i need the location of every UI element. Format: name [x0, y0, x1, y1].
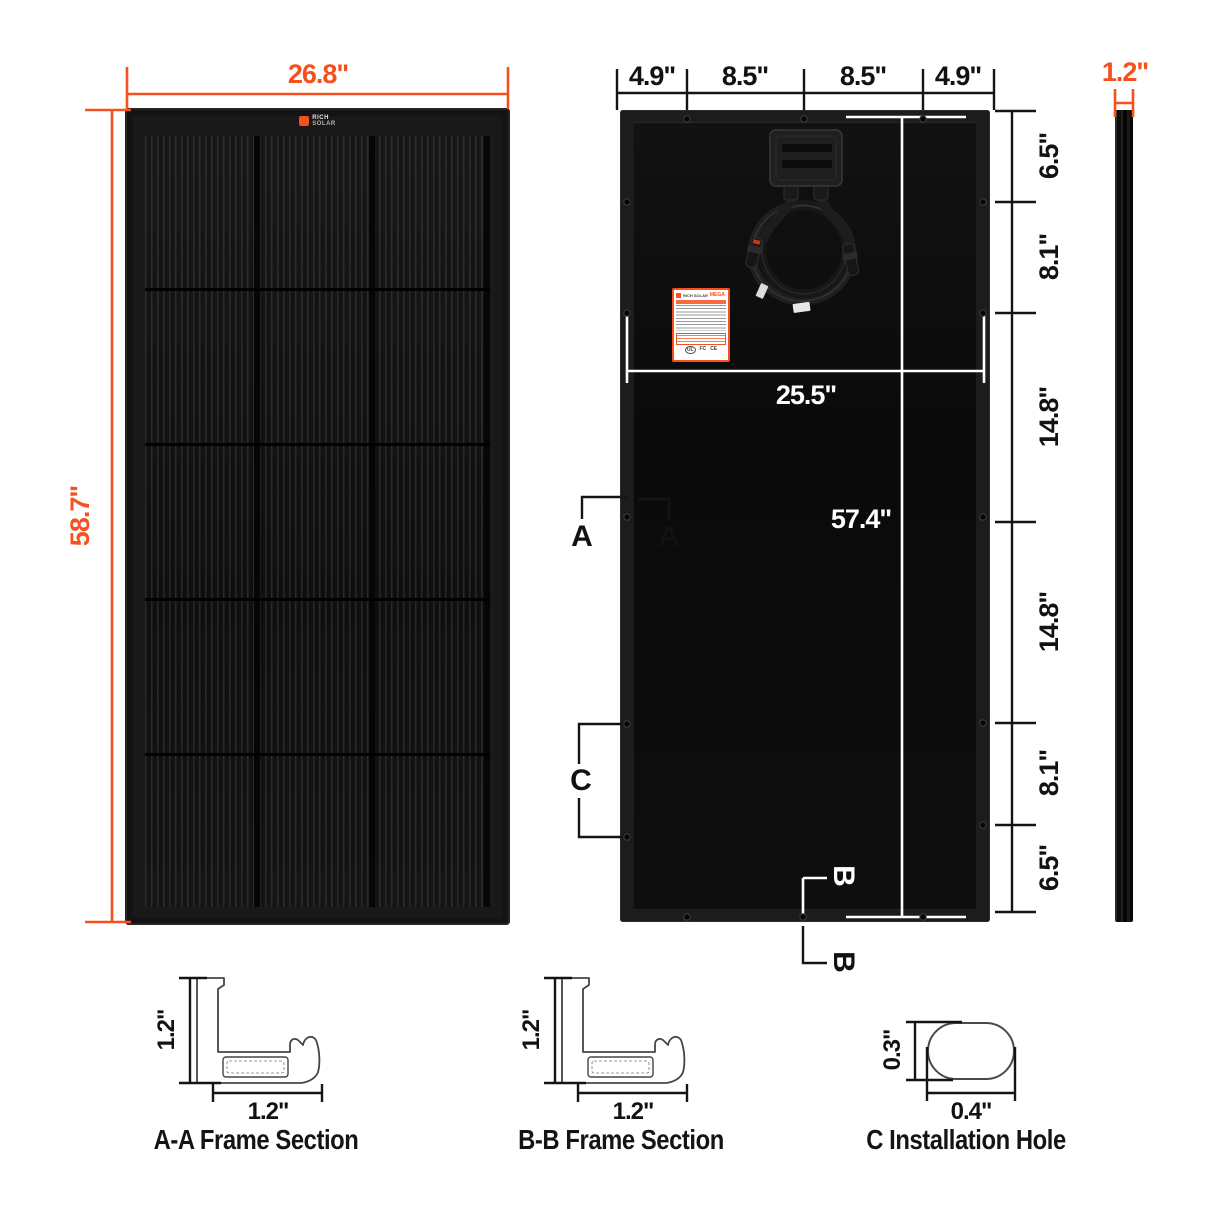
spec-label-brand: RICH SOLAR — [683, 293, 708, 298]
dimension-diagram: RICH SOLAR — [0, 0, 1214, 1214]
hole-span-dim: 25.5" — [746, 381, 866, 409]
aa-horizontal-dim: 1.2" — [208, 1099, 328, 1125]
junction-box — [770, 130, 842, 186]
spec-label-title-bar — [676, 300, 726, 304]
back-right-dim-4: 14.8" — [1035, 562, 1063, 682]
brand-logo: RICH SOLAR — [125, 115, 510, 127]
back-right-dim-3: 14.8" — [1035, 357, 1063, 477]
bb-caption: B-B Frame Section — [502, 1125, 740, 1155]
bb-vertical-dim: 1.2" — [519, 970, 545, 1090]
c-horizontal-dim: 0.4" — [911, 1099, 1031, 1125]
spec-label-logo-icon — [676, 293, 681, 298]
installation-hole-shape — [927, 1022, 1015, 1080]
brand-logo-text: RICH SOLAR — [312, 115, 336, 127]
brand-logo-icon — [299, 116, 309, 126]
aa-vertical-dim: 1.2" — [154, 970, 180, 1090]
front-width-dim: 26.8" — [258, 60, 378, 88]
spec-label-certs: UL FC CE — [676, 346, 726, 354]
junction-box-and-cables — [700, 118, 910, 328]
brand-name-bottom: SOLAR — [312, 121, 336, 127]
section-marker-a-left: A — [562, 521, 602, 553]
spec-label-sticker: RICH SOLAR MEGA UL FC CE — [672, 288, 730, 362]
c-caption: C Installation Hole — [847, 1125, 1085, 1155]
spec-label-table — [676, 305, 726, 331]
back-right-dim-2: 8.1" — [1035, 197, 1063, 317]
aa-caption: A-A Frame Section — [137, 1125, 375, 1155]
section-marker-b-bottom: B — [827, 942, 859, 982]
ce-mark: CE — [710, 346, 717, 354]
spec-label-series: MEGA — [710, 293, 725, 298]
bb-horizontal-dim: 1.2" — [573, 1099, 693, 1125]
c-vertical-dim: 0.3" — [880, 990, 906, 1110]
fcc-mark: FC — [700, 346, 707, 354]
back-top-dim-4: 4.9" — [898, 62, 1018, 90]
back-right-dim-6: 6.5" — [1035, 808, 1063, 928]
side-view-panel — [1115, 110, 1133, 922]
inner-height-dim: 57.4" — [801, 505, 921, 533]
ul-mark: UL — [685, 346, 696, 354]
back-top-dim-2: 8.5" — [685, 62, 805, 90]
section-marker-a-right: A — [649, 521, 689, 553]
spec-label-header: RICH SOLAR MEGA — [676, 292, 726, 299]
spec-label-warning-box — [676, 333, 726, 345]
front-height-dim: 58.7" — [66, 456, 94, 576]
solar-cells-grid — [145, 136, 490, 907]
front-view-panel: RICH SOLAR — [125, 108, 510, 925]
section-marker-b-top: B — [827, 856, 859, 896]
side-thickness-dim: 1.2" — [1065, 58, 1185, 86]
section-marker-c: C — [561, 765, 601, 797]
